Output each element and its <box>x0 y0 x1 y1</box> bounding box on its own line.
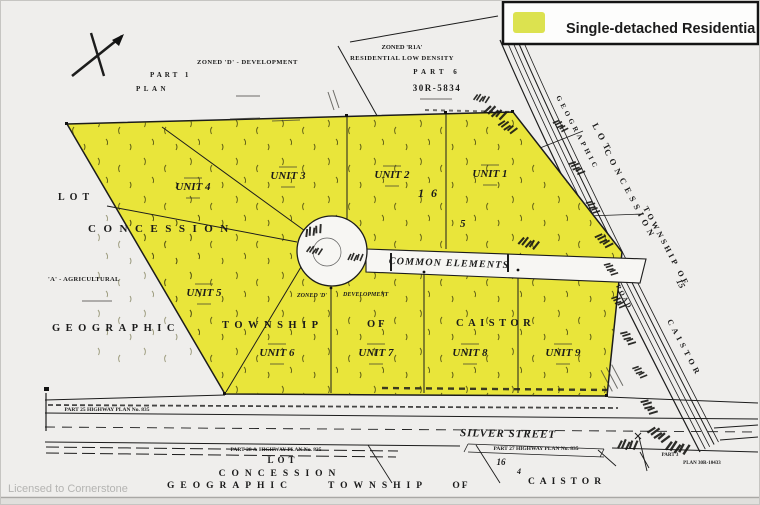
survey-map: ZONED 'D' - DEVELOPMENT PART 1 PLAN ZONE… <box>0 0 760 505</box>
agricultural-zone-label: 'A' - AGRICULTURAL <box>48 276 120 283</box>
west-concession-label: CONCESSION <box>88 223 236 235</box>
part-27-label: PART 27 HIGHWAY PLAN No. 835 <box>493 446 578 452</box>
part-25-label: PART 25 HIGHWAY PLAN No. 835 <box>64 407 149 413</box>
unit-2-label: UNIT 2 <box>374 169 410 181</box>
unit-9-label: UNIT 9 <box>545 347 581 359</box>
lot-16-number: 1 6 <box>418 186 439 200</box>
survey-plan-screenshot: ZONED 'D' - DEVELOPMENT PART 1 PLAN ZONE… <box>0 0 760 505</box>
part-3-label: PART 3 <box>662 453 679 458</box>
west-geographic-label: GEOGRAPHIC <box>52 323 180 334</box>
south-geographic-label: GEOGRAPHIC <box>167 481 293 491</box>
township-label: TOWNSHIP <box>222 320 324 331</box>
unit-3-label: UNIT 3 <box>270 170 306 182</box>
south-township-label: TOWNSHIP <box>328 481 428 491</box>
part-1-label: PART 1 <box>150 71 191 79</box>
zoned-d-small-label: ZONED 'D' <box>296 293 327 299</box>
south-concession-label: CONCESSION <box>219 469 342 479</box>
concession-5-number: 5 <box>460 218 466 230</box>
unit-1-label: UNIT 1 <box>472 168 507 180</box>
plan-30r-5834-label: 30R-5834 <box>413 83 462 93</box>
south-of-label: OF <box>452 481 469 491</box>
south-concession-4-number: 4 <box>516 467 521 476</box>
unit-4-label: UNIT 4 <box>175 181 211 193</box>
legend-label: Single-detached Residentia <box>566 21 756 37</box>
silver-street-label: SILVER STREET <box>460 427 557 441</box>
license-watermark: Licensed to Cornerstone <box>8 483 128 495</box>
of-label: OF <box>367 319 388 330</box>
part-6-label: PART 6 <box>413 68 460 76</box>
residential-low-density-label: RESIDENTIAL LOW DENSITY <box>350 55 454 62</box>
zoned-d-development-label: ZONED 'D' - DEVELOPMENT <box>197 59 298 66</box>
south-lot-label: LOT <box>267 455 298 465</box>
unit-8-label: UNIT 8 <box>452 347 488 359</box>
unit-6-label: UNIT 6 <box>259 347 295 359</box>
unit-7-label: UNIT 7 <box>358 347 394 359</box>
plan-label: PLAN <box>136 85 169 93</box>
development-small-label: DEVELOPMENT <box>342 292 389 298</box>
west-lot-label: LOT <box>58 192 94 203</box>
legend: Single-detached Residentia <box>503 2 758 44</box>
zoned-r1a-label: ZONED 'R1A' <box>382 44 423 51</box>
legend-swatch <box>513 12 545 33</box>
south-lot-16-number: 16 <box>497 457 507 467</box>
south-caistor-label: CAISTOR <box>528 477 606 487</box>
part-28-label: PART 28 & HIGHWAY PLAN No. 835 <box>230 447 321 453</box>
caistor-label: CAISTOR <box>456 318 535 329</box>
plan-30r-10433-label: PLAN 30R-10433 <box>683 461 721 466</box>
unit-5-label: UNIT 5 <box>186 287 222 299</box>
